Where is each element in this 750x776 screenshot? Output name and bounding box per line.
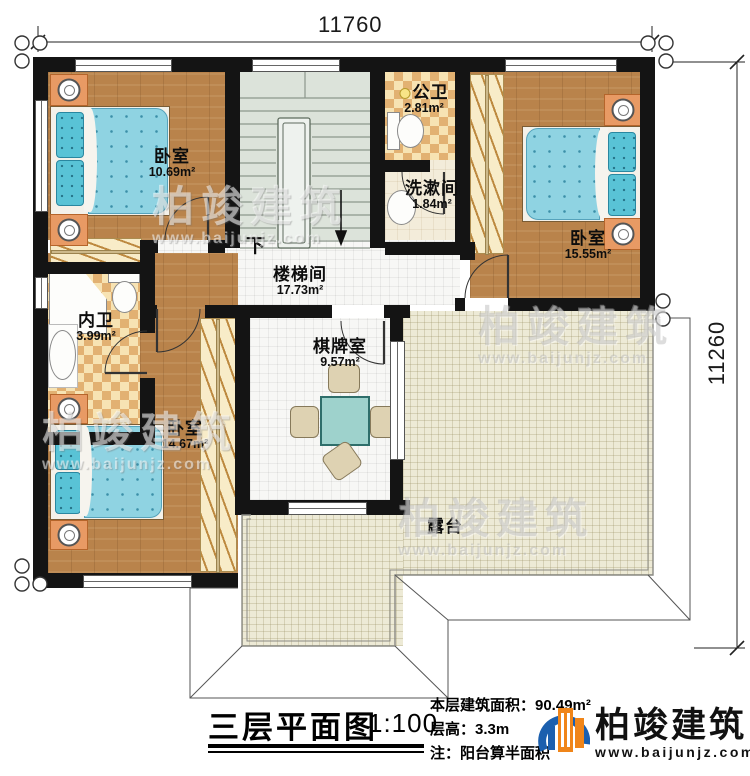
dimension-top: 11760	[318, 12, 383, 38]
dimension-lines	[31, 26, 745, 655]
title-rule-thick	[208, 744, 424, 748]
room-label-stairwell: 楼梯间 17.73m²	[273, 266, 327, 297]
plan-title: 三层平面图	[208, 702, 378, 747]
room-label-inner-bath: 内卫 3.99m²	[76, 312, 116, 343]
info-note: 注：阳台算半面积	[430, 742, 550, 763]
brand-logo-text: 柏竣建筑 www.baijunjz.com	[595, 708, 750, 759]
stair-down-label: 下	[246, 237, 266, 257]
floor-plan: 卧室 10.69m² 公卫 2.81m² 洗漱间 1.84m² 卧室 15.55…	[0, 0, 750, 776]
brand-logo: 柏竣建筑 www.baijunjz.com	[538, 700, 750, 766]
room-label-bedroom-tl: 卧室 10.69m²	[149, 148, 196, 179]
room-label-terrace: 露台	[427, 518, 463, 536]
linework-overlay	[0, 0, 750, 776]
stair-rail	[278, 118, 310, 248]
title-rule-thin	[208, 751, 424, 753]
terrace-parapet	[242, 311, 653, 646]
info-floor-height: 层高：3.3m	[430, 718, 509, 739]
room-label-public-bath: 公卫 2.81m²	[400, 84, 449, 115]
plan-scale: 1:100	[368, 708, 438, 739]
stair-down-arrow-icon	[336, 190, 346, 244]
room-label-game-room: 棋牌室 9.57m²	[313, 338, 367, 369]
room-label-washroom: 洗漱间 1.84m²	[405, 180, 459, 211]
room-label-bedroom-tr: 卧室 15.55m²	[565, 230, 612, 261]
room-label-bedroom-bl: 卧室 14.67m²	[162, 420, 209, 451]
light-fixture-icon	[400, 88, 411, 99]
brand-logo-icon	[538, 700, 590, 766]
dimension-right: 11260	[704, 308, 730, 398]
